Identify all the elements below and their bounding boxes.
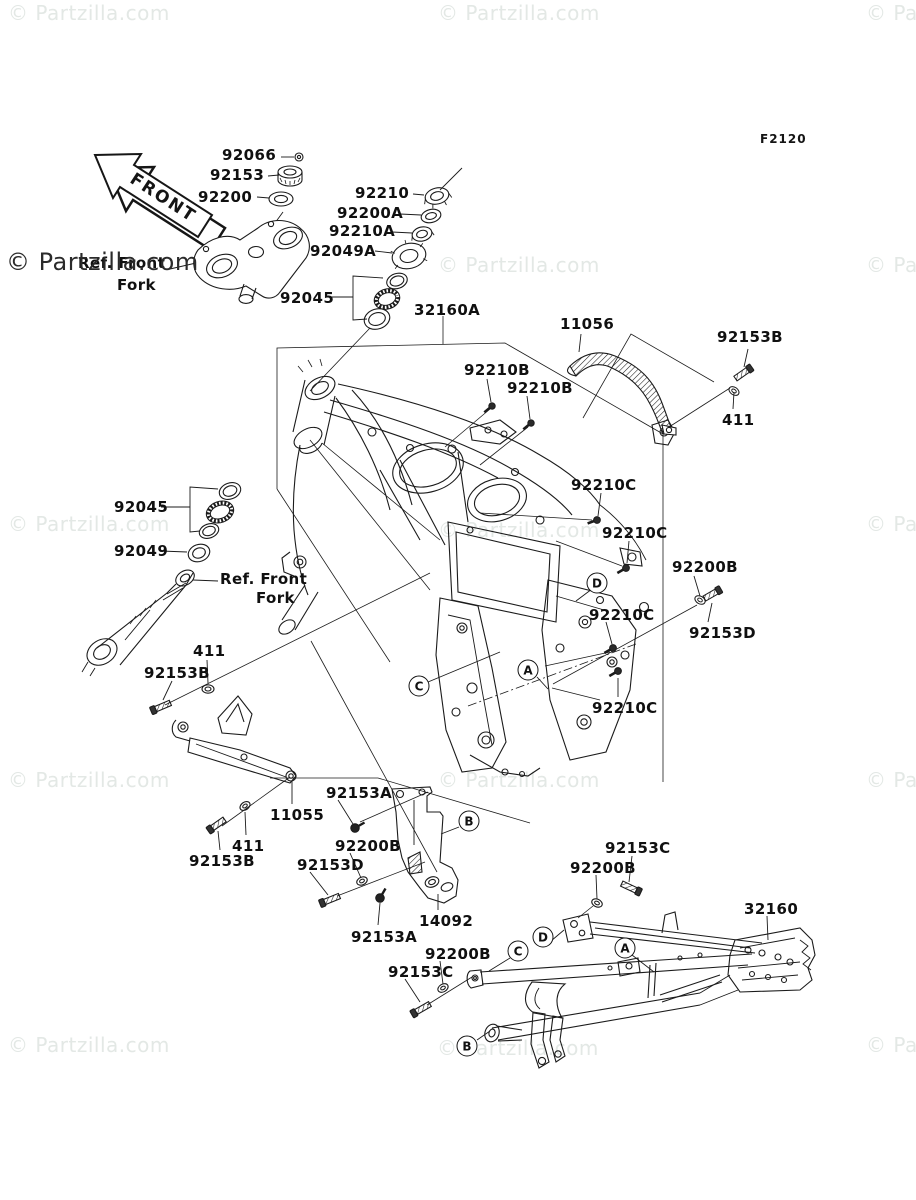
part-label: 92200A — [337, 204, 403, 222]
part-label: 92200B — [672, 558, 738, 576]
callout-D: D — [587, 573, 608, 594]
part-label: 92153A — [326, 784, 392, 802]
figure-code: F2120 — [760, 132, 807, 146]
part-label: 92200 — [198, 188, 252, 206]
part-label: 92153D — [297, 856, 364, 874]
reference-label: Fork — [117, 276, 156, 294]
part-label: 92045 — [114, 498, 168, 516]
part-label: 92210A — [329, 222, 395, 240]
callout-A: A — [615, 938, 636, 959]
callout-D: D — [533, 927, 554, 948]
part-label: 92210B — [507, 379, 573, 397]
part-label: 92066 — [222, 146, 276, 164]
construction-lines — [165, 316, 730, 1005]
part-label: 14092 — [419, 912, 473, 930]
part-label: 92210C — [602, 524, 668, 542]
frame-parts-drawing: FRONT — [0, 0, 916, 1200]
part-label: 11055 — [270, 806, 324, 824]
callout-A: A — [518, 660, 539, 681]
part-label: 92210C — [592, 699, 658, 717]
part-label: 92049A — [310, 242, 376, 260]
part-label: 32160 — [744, 900, 798, 918]
reference-label: Fork — [256, 589, 295, 607]
part-label: 411 — [722, 411, 755, 429]
callout-C: C — [508, 941, 529, 962]
callout-C: C — [409, 676, 430, 697]
part-label: 411 — [193, 642, 226, 660]
part-label: 32160A — [414, 301, 480, 319]
part-label: 92210 — [355, 184, 409, 202]
stay-11056 — [568, 353, 676, 435]
part-label: 92153C — [388, 963, 454, 981]
bolt-92153b-right — [727, 364, 754, 397]
part-label: 92153B — [717, 328, 783, 346]
part-label: 92200B — [335, 837, 401, 855]
parts-diagram-page: © Partzilla.com© Partzilla.com© Partzill… — [0, 0, 916, 1200]
part-label: 92045 — [280, 289, 334, 307]
callout-B: B — [459, 811, 480, 832]
part-label: 92200B — [425, 945, 491, 963]
part-label: 11056 — [560, 315, 614, 333]
part-label: 92210C — [589, 606, 655, 624]
part-label: 92153B — [144, 664, 210, 682]
part-label: 92210C — [571, 476, 637, 494]
reference-label: Ref. Front — [78, 254, 165, 272]
part-label: 92210B — [464, 361, 530, 379]
part-label: 92153B — [189, 852, 255, 870]
part-label: 92153D — [689, 624, 756, 642]
reference-label: Ref. Front — [220, 570, 307, 588]
part-label: 92153 — [210, 166, 264, 184]
part-label: 92153A — [351, 928, 417, 946]
part-label: 92200B — [570, 859, 636, 877]
part-label: 92049 — [114, 542, 168, 560]
part-label: 92153C — [605, 839, 671, 857]
callout-B: B — [457, 1036, 478, 1057]
